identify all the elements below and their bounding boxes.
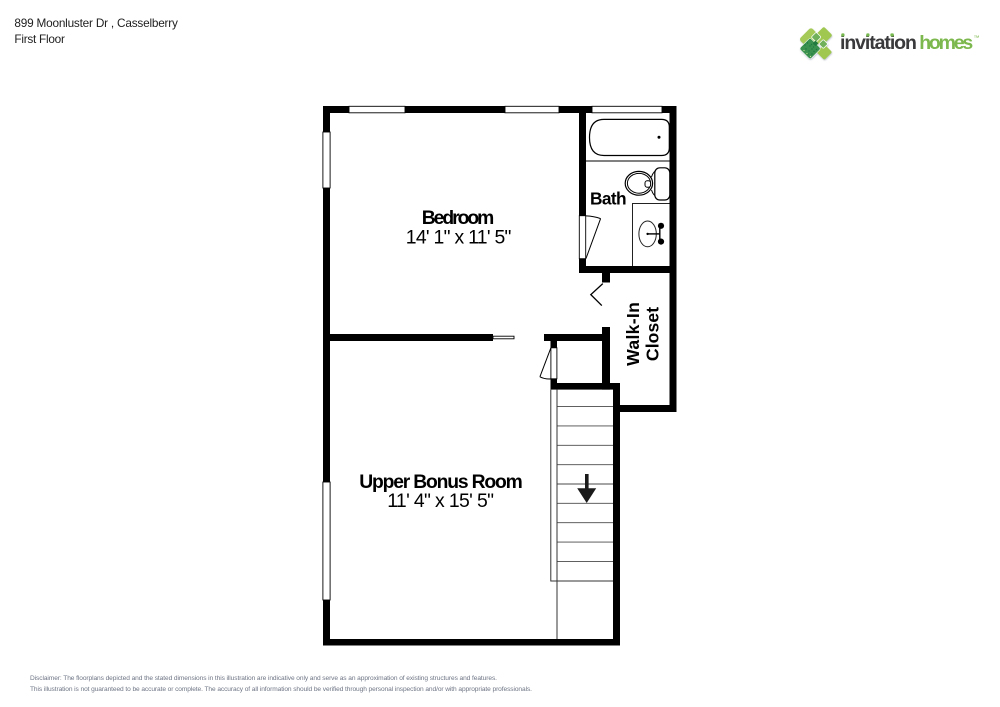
svg-text:Disclaimer: The floorplans dep: Disclaimer: The floorplans depicted and … bbox=[30, 675, 497, 682]
svg-text:™: ™ bbox=[974, 35, 980, 42]
svg-text:11' 4" x 15' 5": 11' 4" x 15' 5" bbox=[387, 490, 494, 512]
svg-text:Bath: Bath bbox=[590, 188, 627, 208]
svg-text:invitation: invitation bbox=[840, 32, 917, 54]
svg-text:14' 1" x 11' 5": 14' 1" x 11' 5" bbox=[406, 227, 512, 249]
svg-text:Closet: Closet bbox=[642, 307, 662, 361]
svg-text:This illustration is not guara: This illustration is not guaranteed to b… bbox=[30, 686, 532, 693]
svg-text:homes: homes bbox=[919, 32, 973, 54]
svg-text:899 Moonluster Dr , Casselberr: 899 Moonluster Dr , Casselberry bbox=[14, 16, 178, 30]
svg-text:First Floor: First Floor bbox=[14, 32, 65, 46]
svg-text:Walk-In: Walk-In bbox=[623, 302, 643, 366]
